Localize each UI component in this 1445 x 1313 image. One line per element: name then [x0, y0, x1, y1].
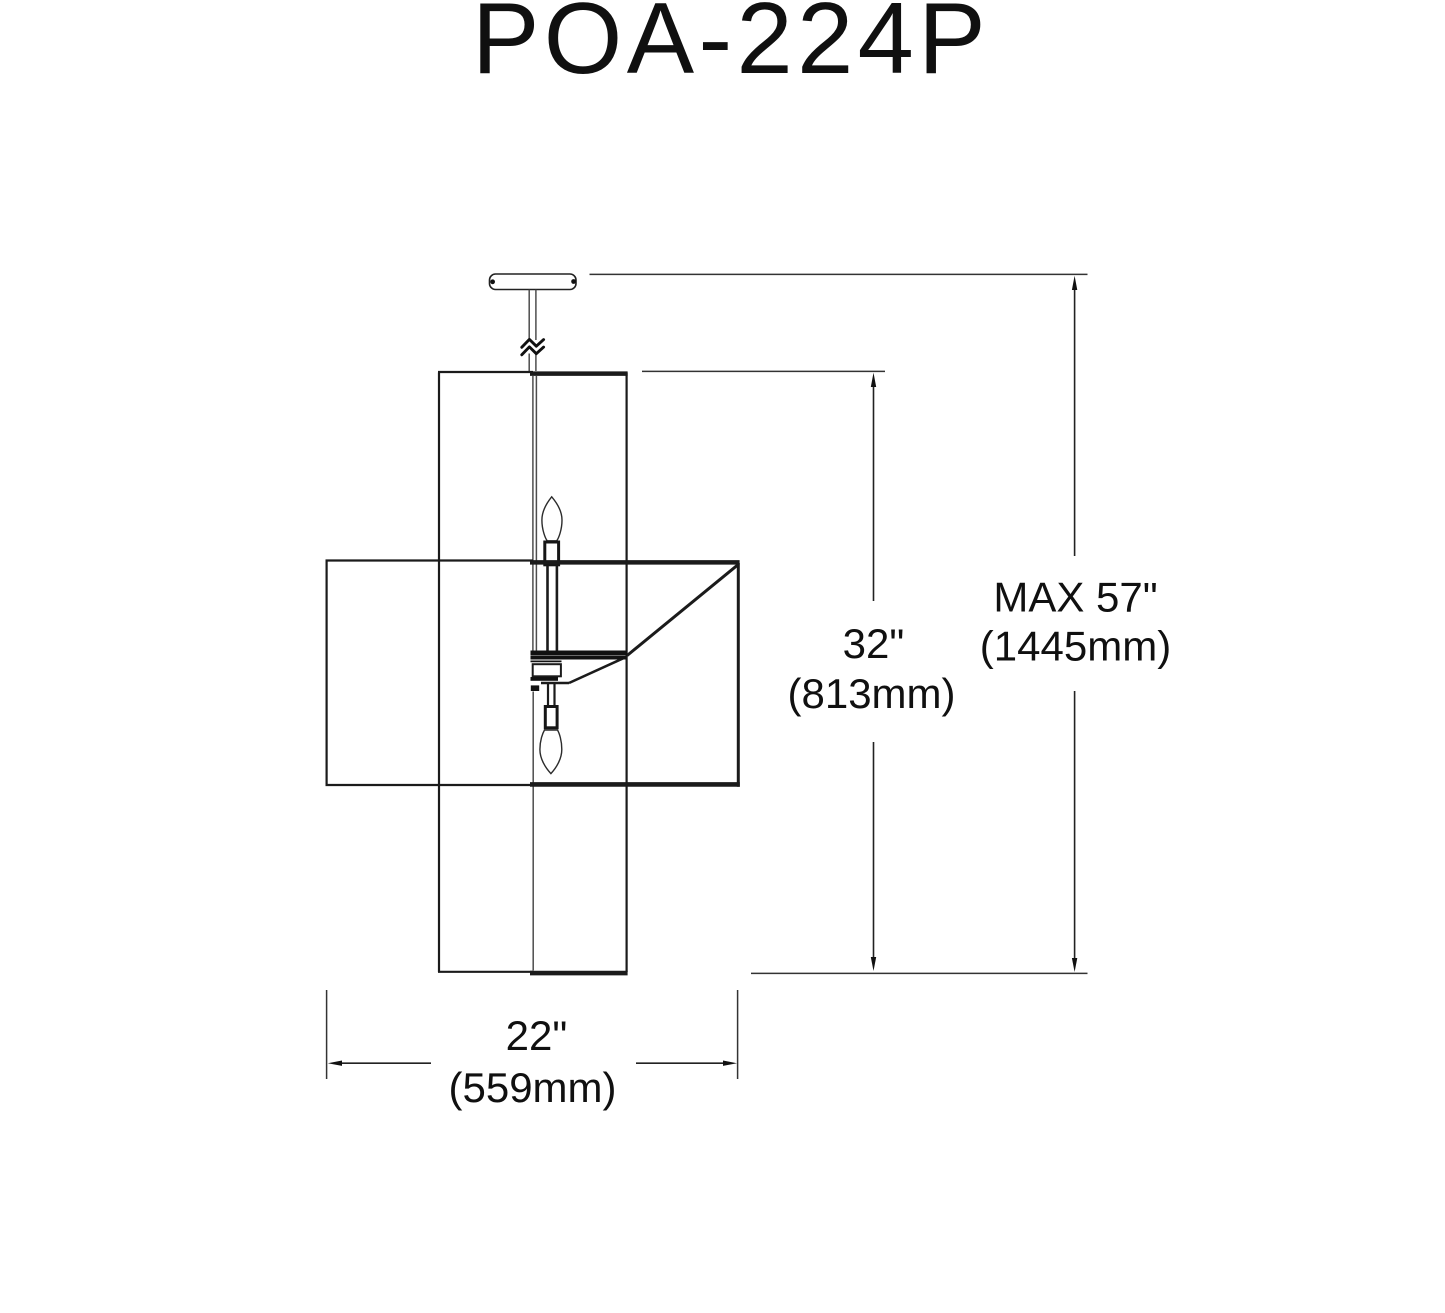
- svg-text:(559mm): (559mm): [448, 1064, 616, 1111]
- svg-text:(813mm): (813mm): [787, 670, 955, 717]
- svg-text:32": 32": [843, 620, 905, 667]
- svg-text:(1445mm): (1445mm): [980, 623, 1171, 670]
- svg-text:POA-224P: POA-224P: [472, 0, 990, 95]
- svg-text:MAX 57": MAX 57": [993, 574, 1157, 621]
- svg-text:22": 22": [506, 1012, 568, 1059]
